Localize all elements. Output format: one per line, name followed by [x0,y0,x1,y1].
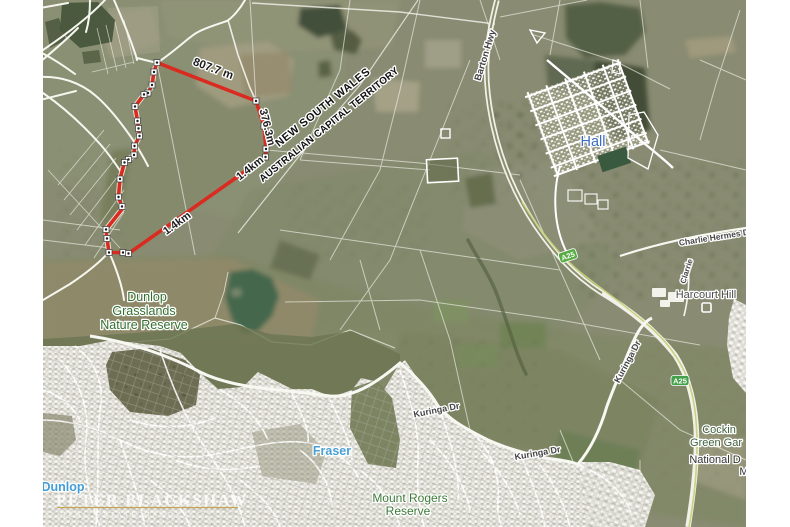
svg-text:PETER BLACKSHAW: PETER BLACKSHAW [56,491,248,510]
svg-text:Hall: Hall [581,134,606,150]
svg-text:Dunlop: Dunlop [127,290,167,304]
svg-text:Cockin: Cockin [702,424,736,436]
svg-text:A25: A25 [673,376,687,385]
svg-text:Green Gar: Green Gar [690,437,742,449]
svg-text:Reserve: Reserve [386,504,431,518]
svg-text:Nature Reserve: Nature Reserve [100,318,188,332]
svg-text:Grasslands: Grasslands [112,304,175,318]
svg-text:Fraser: Fraser [313,444,351,458]
svg-text:Harcourt Hill: Harcourt Hill [676,289,737,301]
svg-text:REAL ESTATE MANUKA: REAL ESTATE MANUKA [61,512,191,519]
svg-text:National D: National D [689,454,740,466]
svg-text:Mount Rogers: Mount Rogers [372,491,447,505]
